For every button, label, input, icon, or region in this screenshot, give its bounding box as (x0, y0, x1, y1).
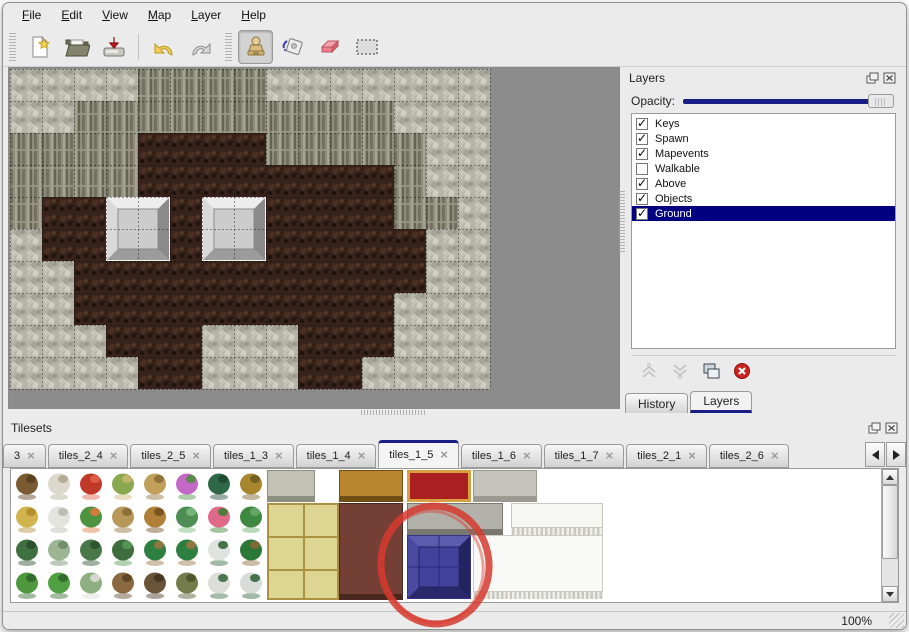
tileset-view[interactable] (10, 468, 899, 603)
layer-row-ground[interactable]: ✓Ground (632, 206, 895, 221)
layer-row-walkable[interactable]: Walkable (632, 161, 895, 176)
tileset-tile-straw-mats[interactable] (267, 503, 339, 600)
eraser-tool-icon (317, 37, 343, 57)
close-tab-icon[interactable]: × (110, 451, 118, 461)
layer-row-objects[interactable]: ✓Objects (632, 191, 895, 206)
new-file-button[interactable] (22, 30, 57, 64)
tileset-tile[interactable] (203, 569, 235, 601)
undo-button[interactable] (146, 30, 181, 64)
tileset-tile[interactable] (43, 470, 75, 502)
layer-name: Spawn (655, 133, 689, 145)
layers-panel-title: Layers (629, 71, 862, 85)
horizontal-splitter[interactable] (361, 410, 425, 415)
tileset-tile-blue-block-selected[interactable] (407, 535, 471, 599)
tileset-tile[interactable] (75, 536, 107, 568)
tileset-tile[interactable] (171, 503, 203, 535)
toolbar-separator (138, 34, 139, 60)
layer-row-spawn[interactable]: ✓Spawn (632, 131, 895, 146)
lower-layer-button[interactable] (670, 361, 690, 381)
tab-label: tiles_1_6 (472, 450, 516, 462)
tileset-tab-tiles_2_4[interactable]: tiles_2_4× (48, 444, 129, 468)
close-tab-icon[interactable]: × (523, 451, 531, 461)
tileset-tab-tiles_1_7[interactable]: tiles_1_7× (544, 444, 625, 468)
tileset-tab-tiles_1_5[interactable]: tiles_1_5× (378, 440, 459, 468)
tileset-tile[interactable] (43, 536, 75, 568)
new-file-icon (28, 35, 52, 59)
tileset-tile-stone-cobble[interactable] (267, 470, 315, 502)
layer-name: Ground (655, 208, 692, 220)
tileset-tile[interactable] (75, 569, 107, 601)
app-window: FileEditViewMapLayerHelp (2, 2, 907, 630)
menu-layer[interactable]: Layer (182, 5, 230, 25)
close-tab-icon[interactable]: × (606, 451, 614, 461)
tileset-tile[interactable] (11, 569, 43, 601)
tileset-tile[interactable] (107, 503, 139, 535)
map-image[interactable] (10, 69, 491, 392)
float-panel-icon[interactable] (868, 422, 881, 434)
tileset-tile-red-carpet[interactable] (407, 470, 471, 502)
stamp-tool-button[interactable] (238, 30, 273, 64)
close-tab-icon[interactable]: × (192, 451, 200, 461)
close-panel-icon[interactable] (885, 422, 898, 434)
close-tab-icon[interactable]: × (27, 451, 35, 461)
layer-name: Walkable (655, 163, 700, 175)
tileset-tile[interactable] (235, 470, 267, 502)
delete-layer-button[interactable] (732, 361, 752, 381)
toolbar-grip[interactable] (225, 33, 232, 61)
save-file-button[interactable] (96, 30, 131, 64)
open-file-icon (64, 36, 90, 58)
tileset-tile[interactable] (203, 503, 235, 535)
menu-file[interactable]: File (13, 5, 50, 25)
tileset-tile[interactable] (75, 470, 107, 502)
menu-edit[interactable]: Edit (52, 5, 91, 25)
tab-label: tiles_1_4 (307, 450, 351, 462)
tileset-tile-stone-stairs[interactable] (407, 503, 503, 535)
layer-visibility-checkbox[interactable]: ✓ (636, 178, 648, 190)
tileset-tile-white-cloth-top[interactable] (511, 503, 603, 535)
tileset-tile[interactable] (235, 503, 267, 535)
close-tab-icon[interactable]: × (275, 451, 283, 461)
layer-name: Objects (655, 193, 692, 205)
undo-icon (151, 36, 177, 58)
tileset-tile-brown-table[interactable] (339, 503, 403, 600)
tileset-tile[interactable] (235, 536, 267, 568)
tileset-tile[interactable] (11, 536, 43, 568)
layer-name: Above (655, 178, 686, 190)
layer-visibility-checkbox[interactable]: ✓ (636, 148, 648, 160)
close-tab-icon[interactable]: × (688, 451, 696, 461)
tileset-tab-3[interactable]: 3× (3, 444, 46, 468)
zoom-level: 100% (841, 614, 872, 628)
layers-panel: Layers Opacity: ✓Keys✓Spawn✓MapeventsWal… (623, 67, 902, 415)
tileset-tile[interactable] (171, 569, 203, 601)
tileset-tile[interactable] (107, 569, 139, 601)
tilesets-panel-title: Tilesets (11, 421, 864, 435)
tileset-tile[interactable] (171, 536, 203, 568)
stamp-tool-icon (245, 35, 267, 59)
tileset-tile[interactable] (43, 503, 75, 535)
layer-list: ✓Keys✓Spawn✓MapeventsWalkable✓Above✓Obje… (631, 113, 896, 349)
tab-label: tiles_2_1 (637, 450, 681, 462)
menu-map[interactable]: Map (139, 5, 180, 25)
tileset-tile[interactable] (11, 470, 43, 502)
tileset-tile-gray-slab[interactable] (473, 470, 537, 502)
tileset-tile[interactable] (235, 569, 267, 601)
opacity-slider-track (683, 99, 890, 104)
statusbar: 100% (3, 611, 906, 630)
layer-row-keys[interactable]: ✓Keys (632, 116, 895, 131)
select-tool-icon (355, 38, 379, 56)
map-canvas[interactable] (8, 67, 620, 409)
tileset-tile[interactable] (75, 503, 107, 535)
tileset-tile[interactable] (11, 503, 43, 535)
layer-row-mapevents[interactable]: ✓Mapevents (632, 146, 895, 161)
tab-label: tiles_2_5 (141, 450, 185, 462)
layer-visibility-checkbox[interactable] (636, 163, 648, 175)
tileset-tile[interactable] (139, 503, 171, 535)
layer-name: Keys (655, 118, 679, 130)
tileset-tab-tiles_2_6[interactable]: tiles_2_6× (709, 444, 790, 468)
tab-label: tiles_1_5 (389, 449, 433, 461)
menubar: FileEditViewMapLayerHelp (3, 3, 906, 27)
tab-label: tiles_2_6 (720, 450, 764, 462)
tab-history[interactable]: History (625, 393, 688, 413)
tileset-tab-tiles_1_3[interactable]: tiles_1_3× (213, 444, 294, 468)
tileset-tab-tiles_1_4[interactable]: tiles_1_4× (296, 444, 377, 468)
tabs-scroll-left-icon[interactable] (865, 442, 885, 467)
toolbar-grip[interactable] (9, 33, 16, 61)
close-panel-icon[interactable] (883, 72, 896, 84)
close-tab-icon[interactable]: × (771, 451, 779, 461)
close-tab-icon[interactable]: × (440, 450, 448, 460)
opacity-slider-handle[interactable] (868, 94, 894, 108)
opacity-slider[interactable] (683, 93, 894, 109)
tileset-scrollbar[interactable] (881, 469, 898, 602)
select-tool-button[interactable] (349, 30, 384, 64)
tileset-tile-white-cloth-big[interactable] (473, 535, 603, 599)
scroll-down-icon[interactable] (882, 586, 898, 602)
tab-label: tiles_1_3 (224, 450, 268, 462)
tileset-tile[interactable] (139, 536, 171, 568)
save-file-icon (102, 36, 126, 58)
tileset-tile[interactable] (43, 569, 75, 601)
fill-tool-button[interactable] (275, 30, 310, 64)
layer-name: Mapevents (655, 148, 709, 160)
tileset-tile[interactable] (171, 470, 203, 502)
tileset-tile[interactable] (107, 536, 139, 568)
tileset-tile-gold-counter[interactable] (339, 470, 403, 502)
layer-actions (631, 355, 896, 385)
layer-row-above[interactable]: ✓Above (632, 176, 895, 191)
menu-help[interactable]: Help (232, 5, 275, 25)
tilesets-panel: Tilesets 3×tiles_2_4×tiles_2_5×tiles_1_3… (3, 417, 906, 611)
close-tab-icon[interactable]: × (358, 451, 366, 461)
opacity-label: Opacity: (631, 94, 675, 108)
raise-layer-button[interactable] (639, 361, 659, 381)
layer-visibility-checkbox[interactable]: ✓ (636, 208, 648, 220)
menu-view[interactable]: View (93, 5, 137, 25)
side-panel-tabs: HistoryLayers (625, 391, 754, 413)
duplicate-layer-button[interactable] (701, 361, 721, 381)
tileset-tile[interactable] (107, 470, 139, 502)
layer-visibility-checkbox[interactable]: ✓ (636, 118, 648, 130)
tab-layers[interactable]: Layers (690, 391, 752, 413)
resize-grip[interactable] (889, 613, 904, 628)
layer-visibility-checkbox[interactable]: ✓ (636, 133, 648, 145)
tileset-tile[interactable] (139, 569, 171, 601)
toolbar (3, 27, 906, 67)
fill-tool-icon (280, 35, 306, 59)
tileset-tab-tiles_2_1[interactable]: tiles_2_1× (626, 444, 707, 468)
float-panel-icon[interactable] (866, 72, 879, 84)
tabs-scroll-right-icon[interactable] (886, 442, 906, 467)
scroll-up-icon[interactable] (882, 469, 898, 485)
tab-label: tiles_1_7 (555, 450, 599, 462)
tileset-tile[interactable] (203, 470, 235, 502)
tab-label: tiles_2_4 (59, 450, 103, 462)
tileset-tab-tiles_1_6[interactable]: tiles_1_6× (461, 444, 542, 468)
tab-label: 3 (14, 450, 20, 462)
redo-button[interactable] (183, 30, 218, 64)
tileset-tile[interactable] (203, 536, 235, 568)
redo-icon (188, 36, 214, 58)
tileset-tile[interactable] (139, 470, 171, 502)
tileset-tabbar: 3×tiles_2_4×tiles_2_5×tiles_1_3×tiles_1_… (3, 439, 906, 468)
eraser-tool-button[interactable] (312, 30, 347, 64)
layer-visibility-checkbox[interactable]: ✓ (636, 193, 648, 205)
tileset-tab-tiles_2_5[interactable]: tiles_2_5× (130, 444, 211, 468)
scrollbar-thumb[interactable] (882, 485, 898, 559)
open-file-button[interactable] (59, 30, 94, 64)
